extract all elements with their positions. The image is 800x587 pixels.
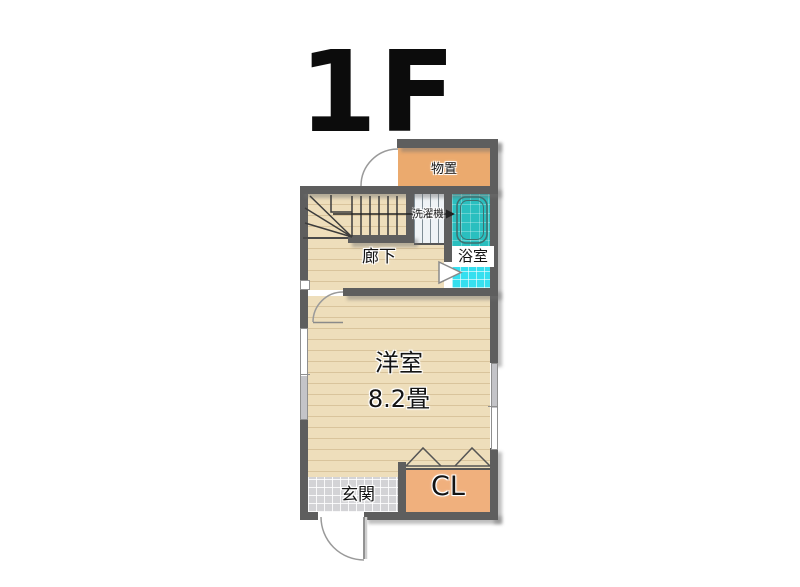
stairs-treads: [361, 196, 397, 235]
bathtub-icon: [457, 197, 487, 243]
stairs-winder: [305, 195, 352, 237]
storage-door-arc-icon: [361, 149, 398, 186]
room-door-arc-icon: [313, 292, 343, 323]
floorplan-canvas: 1F: [0, 0, 800, 587]
label-western-room: 洋室: [308, 343, 490, 378]
entrance-door-arc-icon: [321, 517, 366, 560]
label-bath: 浴室: [452, 246, 494, 267]
label-laundry: 洗濯機: [402, 206, 454, 221]
label-closet: CL: [406, 471, 490, 502]
label-western-size: 8.2畳: [308, 379, 490, 414]
label-entrance: 玄関: [313, 480, 403, 505]
label-storage: 物置: [398, 158, 490, 177]
label-hallway: 廊下: [336, 242, 422, 267]
closet-folding-door-icon: [406, 448, 490, 466]
